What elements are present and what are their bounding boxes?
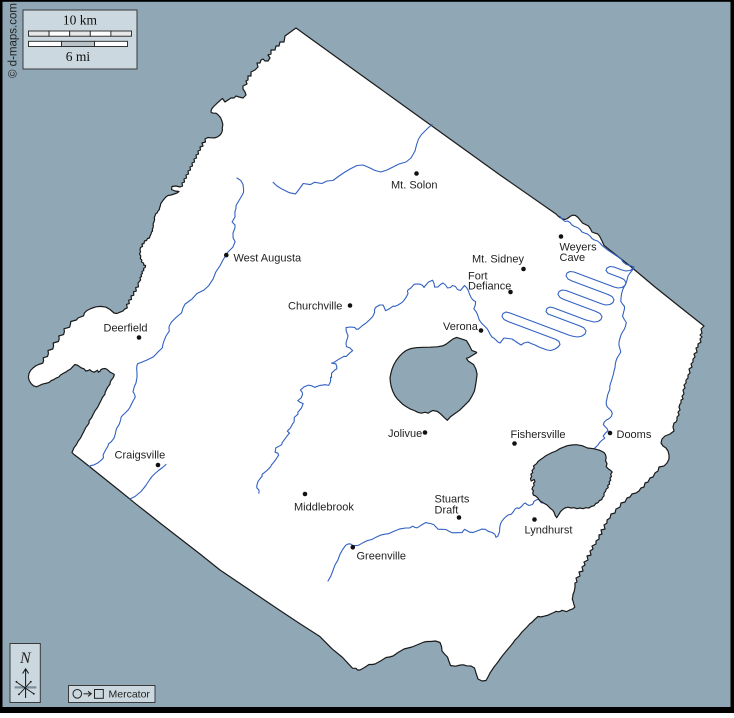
svg-text:Defiance: Defiance <box>468 281 511 293</box>
svg-text:Mercator: Mercator <box>109 689 151 701</box>
svg-text:10 km: 10 km <box>63 13 98 28</box>
svg-text:Lyndhurst: Lyndhurst <box>525 525 573 537</box>
svg-text:Fishersville: Fishersville <box>511 429 566 441</box>
svg-text:6 mi: 6 mi <box>66 49 91 64</box>
svg-text:Cave: Cave <box>560 252 586 264</box>
svg-text:Dooms: Dooms <box>617 429 652 441</box>
svg-text:Greenville: Greenville <box>357 551 407 563</box>
svg-text:Draft: Draft <box>435 505 459 517</box>
svg-text:West Augusta: West Augusta <box>234 253 303 265</box>
svg-text:Deerfield: Deerfield <box>104 323 148 335</box>
svg-text:Mt. Solon: Mt. Solon <box>391 180 437 192</box>
svg-text:© d-maps.com: © d-maps.com <box>8 3 20 78</box>
svg-text:Middlebrook: Middlebrook <box>294 502 354 514</box>
svg-text:Craigsville: Craigsville <box>115 450 166 462</box>
svg-text:Churchville: Churchville <box>288 301 342 313</box>
svg-text:N: N <box>19 650 32 667</box>
svg-text:Mt. Sidney: Mt. Sidney <box>472 254 524 266</box>
svg-text:Jolivue: Jolivue <box>388 428 422 440</box>
svg-text:Verona: Verona <box>443 321 479 333</box>
